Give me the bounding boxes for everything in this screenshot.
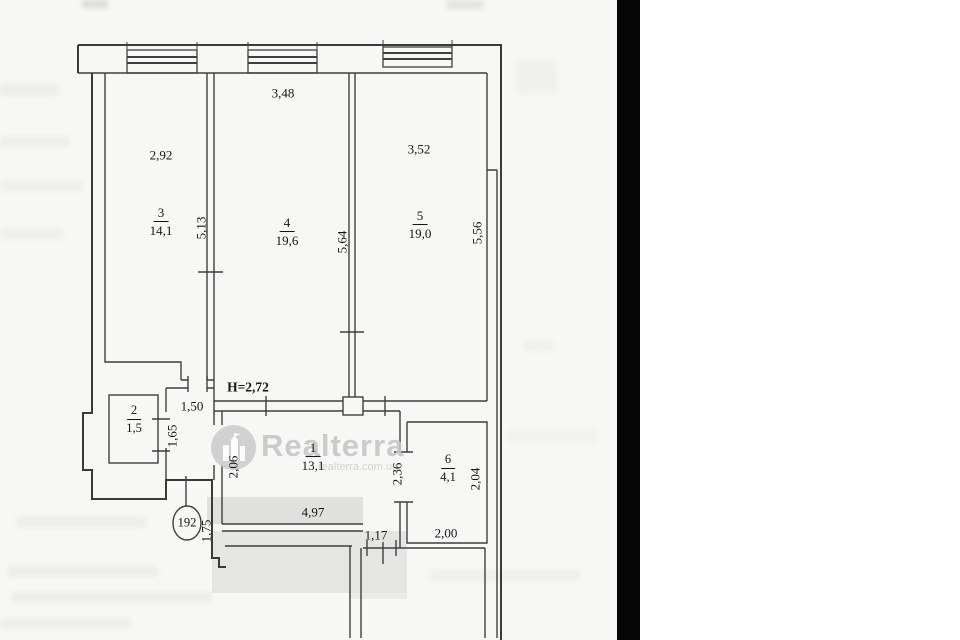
- dim-room6-width: 2,00: [435, 527, 458, 540]
- room-5-number: 5: [413, 209, 428, 225]
- dim-room3-width: 2,92: [150, 149, 173, 162]
- room-2-label: 2 1,5: [126, 404, 142, 434]
- room-5-area: 19,0: [409, 225, 432, 240]
- watermark-url: realterra.com.ua: [318, 461, 398, 473]
- room-1-label: 1 13,1: [302, 441, 325, 472]
- room-2-area: 1,5: [126, 420, 142, 435]
- dim-corridor-length: 4,97: [302, 506, 325, 519]
- room-3-label: 3 14,1: [150, 206, 173, 237]
- dim-corridor-door: 1,17: [365, 529, 388, 542]
- room-1-area: 13,1: [302, 457, 325, 472]
- scan-black-bar: [617, 0, 640, 640]
- window-symbols: [127, 47, 452, 73]
- floorplan-walls: [0, 0, 617, 640]
- dim-room4-width: 3,48: [272, 87, 295, 100]
- room-4-area: 19,6: [276, 232, 299, 247]
- room-3-area: 14,1: [150, 222, 173, 237]
- room-3-number: 3: [154, 206, 169, 222]
- room-4-number: 4: [280, 216, 295, 232]
- dim-entry-width: 1,75: [200, 520, 213, 543]
- ceiling-height-label: Н=2,72: [227, 380, 269, 394]
- watermark-brand: Realterra: [261, 428, 404, 464]
- room-6-area: 4,1: [440, 469, 456, 484]
- dim-hall-depth: 2,06: [227, 456, 240, 479]
- room-1-number: 1: [306, 441, 321, 457]
- dim-room5-depth: 5,56: [471, 222, 484, 245]
- blank-margin: [640, 0, 960, 640]
- dim-room6-right-depth: 2,04: [469, 468, 482, 491]
- room-2-number: 2: [127, 404, 141, 420]
- dim-hall-opening: 1,50: [181, 400, 204, 413]
- room-5-label: 5 19,0: [409, 209, 432, 240]
- dim-room3-depth: 5,13: [195, 217, 208, 240]
- dim-room2-depth: 1,65: [166, 425, 179, 448]
- room-6-label: 6 4,1: [440, 453, 456, 483]
- room-6-number: 6: [441, 453, 455, 469]
- dim-room5-width: 3,52: [408, 143, 431, 156]
- room-4-label: 4 19,6: [276, 216, 299, 247]
- dim-room4-depth: 5,64: [336, 231, 349, 254]
- apartment-number: 192: [178, 516, 197, 531]
- dim-room6-left-depth: 2,36: [391, 463, 404, 486]
- scanned-floorplan-page: Realterra realterra.com.ua 3 14,1 4 19,6…: [0, 0, 960, 640]
